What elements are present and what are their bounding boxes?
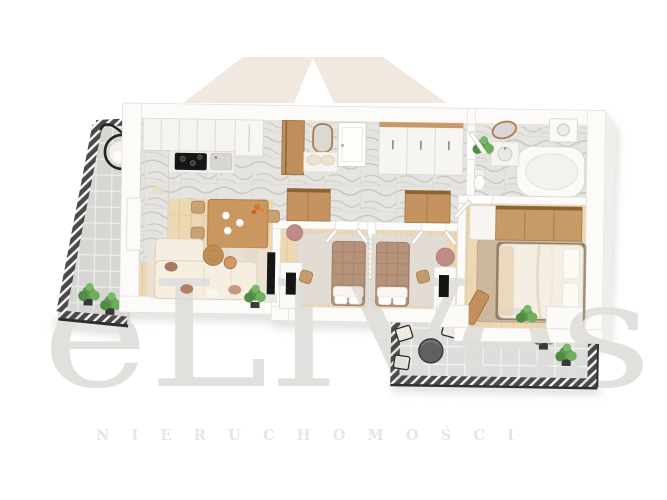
desk-chair bbox=[416, 269, 431, 284]
balcony-door bbox=[126, 198, 141, 250]
vanity-sink bbox=[491, 142, 519, 166]
terrace-door-landing bbox=[436, 305, 468, 327]
bedroom-2-bed bbox=[376, 242, 410, 307]
hall-wardrobes bbox=[379, 122, 464, 175]
dining-chair bbox=[191, 201, 204, 213]
towel bbox=[152, 186, 164, 194]
bedroom-1-bed bbox=[332, 241, 366, 306]
terrace-door-landing bbox=[546, 307, 582, 330]
master-wardrobe bbox=[470, 205, 583, 241]
pouf bbox=[287, 225, 303, 241]
pouf bbox=[436, 248, 454, 266]
monitor bbox=[439, 275, 449, 297]
tv-stand bbox=[265, 294, 277, 302]
wall-mirror bbox=[313, 124, 332, 152]
terrace-table bbox=[419, 339, 443, 363]
kitchen-upper-cabinets bbox=[143, 118, 235, 151]
monitor bbox=[286, 273, 296, 295]
bedroom-2 bbox=[370, 234, 456, 309]
roof-logo-watermark bbox=[183, 57, 447, 103]
toilet bbox=[474, 169, 485, 190]
kitchen-sink bbox=[211, 153, 232, 169]
dining-chair bbox=[191, 227, 204, 239]
render-canvas: eLIVes NIERUCHOMOŚCI bbox=[0, 0, 667, 500]
bed-pillow bbox=[563, 249, 579, 279]
bedroom-1 bbox=[279, 224, 369, 309]
terrace-chair bbox=[393, 355, 410, 370]
bathtub bbox=[516, 146, 585, 197]
living-room bbox=[146, 238, 277, 308]
apartment bbox=[119, 103, 617, 344]
entrance-door bbox=[338, 122, 367, 166]
floorplan-3d-render bbox=[0, 0, 667, 500]
tv-screen bbox=[267, 252, 276, 294]
washing-machine bbox=[549, 119, 577, 142]
bed-throw bbox=[498, 246, 514, 316]
